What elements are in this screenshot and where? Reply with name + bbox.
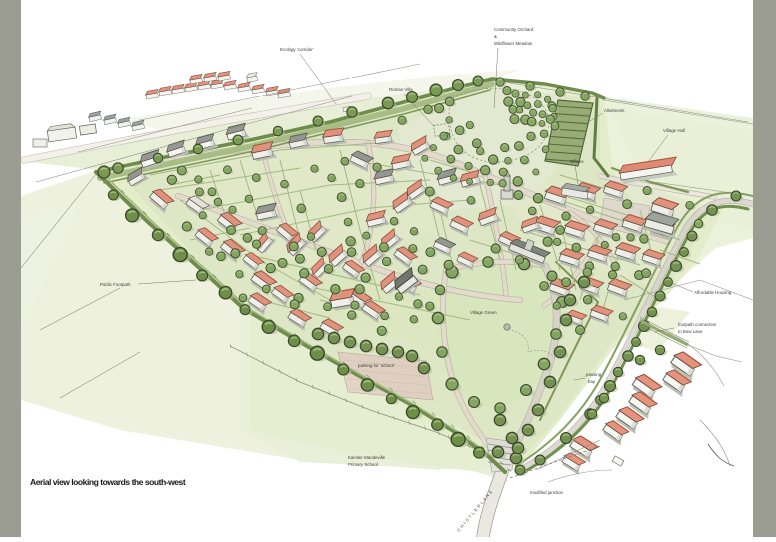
svg-text:Roman Villa: Roman Villa: [389, 87, 413, 92]
svg-text:footpath connection: footpath connection: [678, 322, 717, 327]
svg-text:Kaimler Mandeville: Kaimler Mandeville: [348, 455, 386, 460]
svg-text:passing: passing: [586, 372, 602, 377]
svg-text:Primary School: Primary School: [348, 462, 378, 467]
svg-text:Village Hall: Village Hall: [663, 128, 685, 133]
svg-text:Wildflower Meadow: Wildflower Meadow: [494, 41, 533, 46]
svg-text:Village Green: Village Green: [470, 310, 497, 315]
svg-text:Ecology ‘corridor’: Ecology ‘corridor’: [280, 47, 314, 52]
svg-text:Affordable Housing: Affordable Housing: [694, 290, 732, 295]
svg-text:&: &: [494, 34, 497, 39]
svg-text:bay: bay: [588, 379, 596, 384]
svg-text:Offices: Offices: [570, 159, 584, 164]
svg-text:parking for ‘school’: parking for ‘school’: [358, 363, 395, 368]
svg-text:Community Orchard: Community Orchard: [494, 27, 534, 32]
svg-text:Public Footpath: Public Footpath: [100, 282, 131, 287]
svg-text:to Bow Lane: to Bow Lane: [678, 329, 703, 334]
svg-text:Allotments: Allotments: [604, 108, 625, 113]
svg-text:modified junction: modified junction: [530, 490, 564, 495]
svg-text:Aerial view looking towards th: Aerial view looking towards the south-we…: [30, 477, 186, 487]
